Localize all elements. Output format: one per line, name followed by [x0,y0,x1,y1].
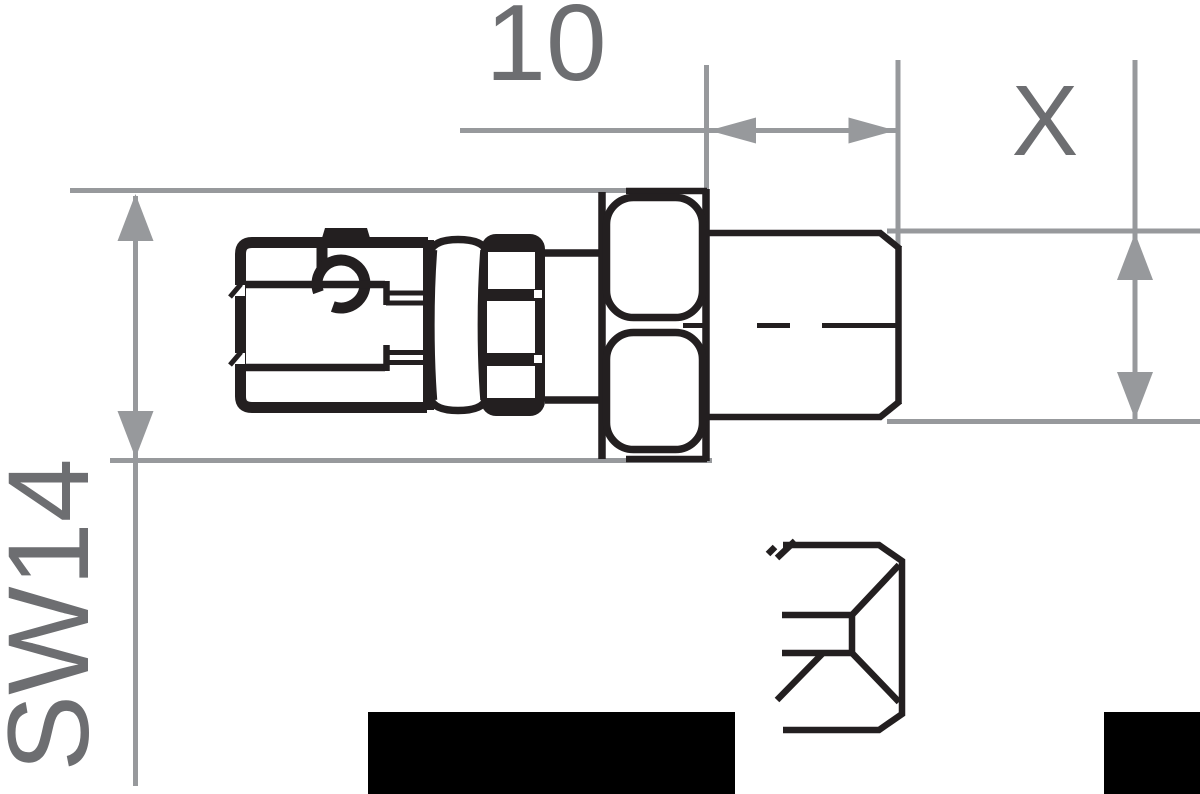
thread-diameter-label: X [1012,65,1079,177]
thread-diameter-dimension: X [887,60,1200,422]
hex-width-label: SW14 [0,458,113,771]
masked-block-right [1104,712,1200,794]
masked-block-left [368,712,735,794]
hex-facet-top [607,198,703,318]
groove-relief [534,355,542,363]
release-tab [322,228,370,238]
thread-length-label: 10 [485,0,606,104]
arrowhead-up-icon [118,194,154,241]
connector-side-view [228,189,900,461]
technical-drawing-canvas: 10 SW14 X [0,0,1200,794]
groove-relief [534,290,542,298]
collar-groove [487,366,535,398]
chamfer-diagonal [777,653,823,700]
chamfer-diagonal [852,565,899,615]
sleeve-left-edge [431,250,434,400]
arrowhead-down-icon [1117,372,1153,419]
break-tick [768,547,775,554]
sleeve-bottom-edge [430,398,487,411]
connector-drawing: 10 SW14 X [0,0,1200,794]
chamfer-diagonal [852,653,899,702]
hex-outline [783,545,902,730]
collar-groove [488,252,535,289]
hex-end-view [768,541,902,730]
thread-length-dimension: 10 [460,0,898,247]
sleeve-top-edge [430,240,487,253]
hex-facet-bottom [607,333,703,450]
collar-groove [487,301,535,353]
arrowhead-left-icon [709,118,756,144]
arrowhead-down-icon [118,411,154,458]
body-outline [241,243,429,408]
arrowhead-up-icon [1117,233,1153,280]
arrowhead-right-icon [849,118,896,144]
